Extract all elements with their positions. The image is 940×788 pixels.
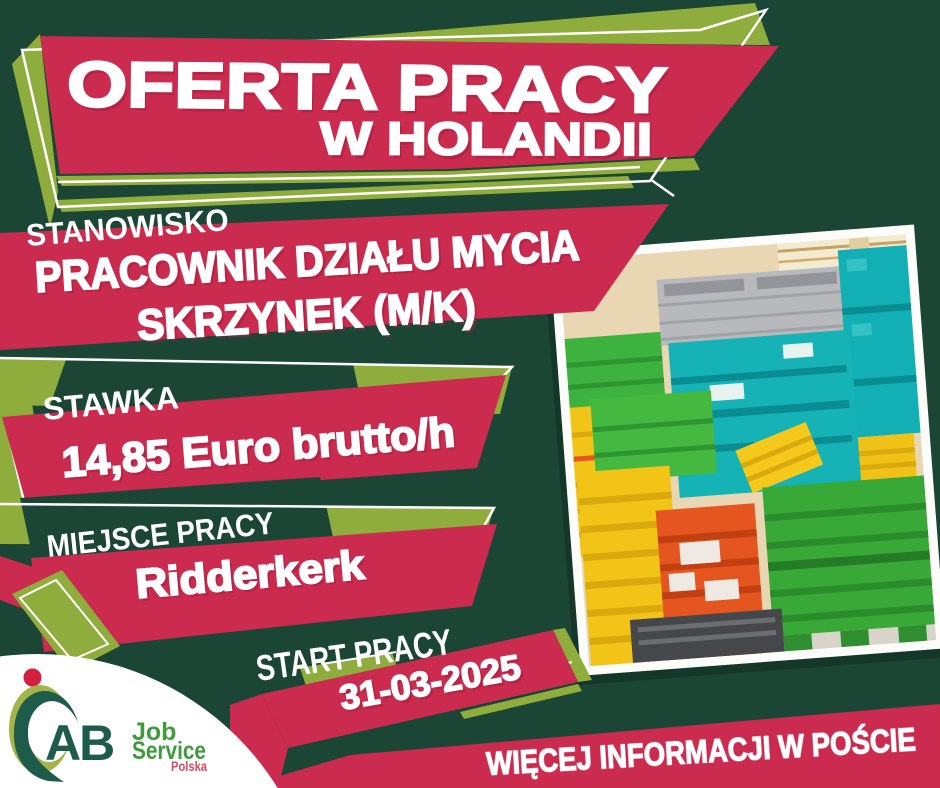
svg-text:W HOLANDII: W HOLANDII — [320, 112, 652, 165]
svg-text:AB: AB — [45, 715, 113, 771]
svg-text:Polska: Polska — [171, 759, 207, 774]
